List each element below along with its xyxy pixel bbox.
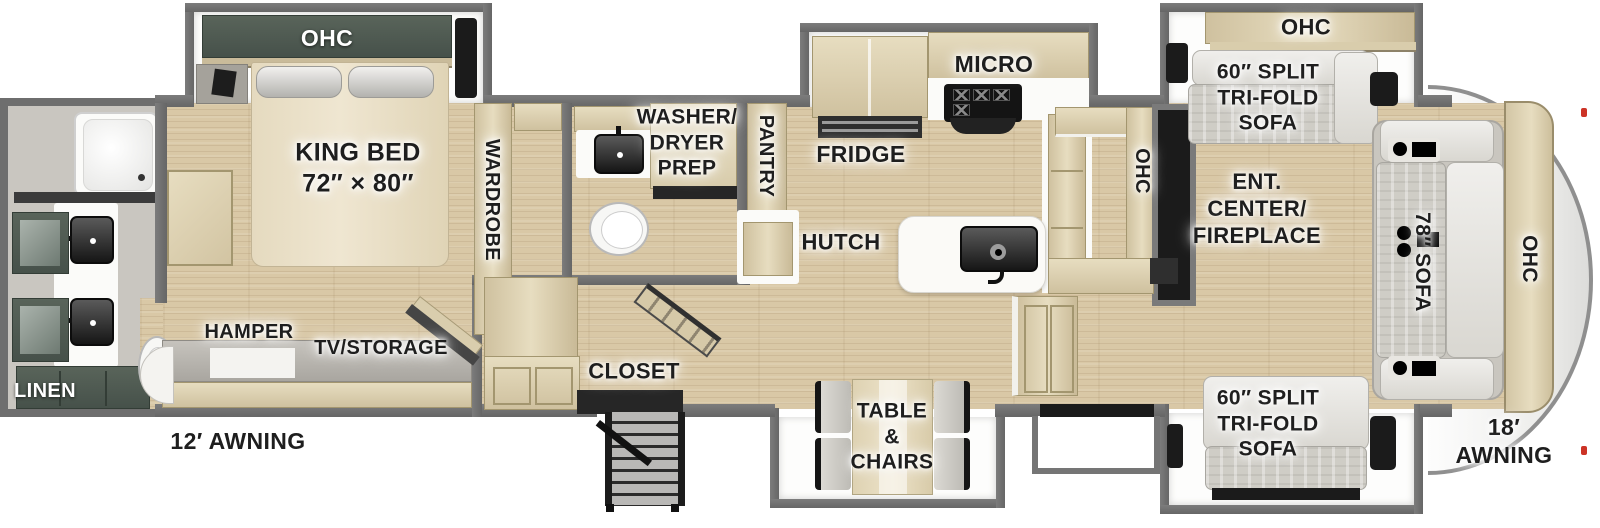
label-top-slide-ohc: OHC (1281, 15, 1331, 42)
cupholder (1393, 361, 1407, 375)
fridge-vent (822, 121, 918, 124)
wall-bedroom-bath-divider (155, 103, 167, 303)
faucet-hole (995, 249, 1002, 256)
bed-slide-wall-top (185, 3, 492, 12)
buffet-dark-shelf (1150, 258, 1178, 284)
bed-slide-wall-left (185, 3, 194, 107)
dining-chair (815, 438, 851, 490)
cabinet-line (1051, 227, 1083, 229)
cabinet-door (1024, 305, 1048, 393)
sink-drain (90, 320, 96, 326)
entry-landing (577, 390, 683, 414)
bath-shelf (14, 192, 156, 203)
bench-panel (535, 367, 573, 405)
range-hood (950, 118, 1016, 134)
clearance-light-bottom (1581, 446, 1587, 455)
tall-cabinet (1012, 296, 1078, 396)
dining-chair (934, 381, 970, 433)
buffet-cabinet (1048, 258, 1154, 294)
closet-bench (484, 356, 580, 410)
table-slide-wall-bottom (770, 499, 1005, 508)
shower (74, 112, 158, 196)
label-front-ohc: OHC (1516, 235, 1542, 283)
cabinet-door (1050, 305, 1074, 393)
fridge-base (818, 116, 922, 138)
wall-bottom-2 (675, 404, 775, 417)
kitchen-slide-wall-top (800, 23, 1098, 32)
top-slide-window-left (1166, 43, 1188, 83)
label-closet: CLOSET (588, 359, 680, 386)
label-awning-18: 18′ AWNING (1456, 413, 1553, 469)
table-slide-wall-right (996, 408, 1005, 508)
hall-shelf (514, 103, 562, 131)
bottom-sofa-slide-wall-bottom (1160, 505, 1423, 514)
hutch-cabinet (743, 222, 793, 276)
sink-drain (90, 238, 96, 244)
fridge-door-split (868, 39, 871, 117)
bottom-slide-window-right (1370, 416, 1396, 470)
mirror-cabinet-1 (12, 212, 69, 274)
label-fridge: FRIDGE (816, 140, 905, 168)
dining-chair (934, 438, 970, 490)
burner-icon (973, 89, 990, 101)
table-slide-wall-left (770, 408, 779, 508)
stove (944, 84, 1022, 122)
top-slide-window-right (1370, 72, 1398, 106)
bed-pillow-left (256, 66, 342, 98)
front-entry-step-well (1032, 416, 1160, 474)
wall-bottom-4 (1420, 404, 1452, 417)
dining-chair (815, 381, 851, 433)
label-awning-12: 12′ AWNING (170, 427, 305, 455)
vanity-sink-2 (70, 298, 114, 346)
console-tray (1412, 142, 1436, 157)
label-hamper: HAMPER (204, 320, 293, 344)
top-sofa-slide-wall-top (1160, 3, 1423, 12)
closet-cabinet-upper (484, 277, 578, 359)
island-sink (960, 226, 1038, 272)
label-micro: MICRO (955, 50, 1034, 78)
bottom-slide-window-left (1167, 424, 1183, 468)
bed-slide-wall-right (483, 3, 492, 107)
label-washer-dryer-prep: WASHER/ DRYER PREP (637, 105, 738, 182)
front-sofa-console-top (1388, 138, 1440, 162)
label-table-chairs: TABLE & CHAIRS (851, 399, 934, 476)
bottom-sofa-base (1212, 488, 1360, 500)
bottom-sofa-slide-wall-right (1414, 404, 1423, 514)
label-wardrobe: WARDROBE (480, 139, 504, 261)
nightstand (196, 64, 248, 104)
burner-icon (953, 104, 970, 116)
wall-midbath-left (562, 103, 572, 285)
label-pantry: PANTRY (754, 115, 778, 197)
clearance-light-top (1581, 108, 1587, 117)
fridge-vent (822, 129, 918, 132)
hamper-inset (210, 348, 295, 378)
bench-panel (493, 367, 531, 405)
mirror-glass (20, 220, 60, 266)
washer-dryer-drawers (653, 186, 737, 199)
vanity-sink-1 (70, 216, 114, 264)
floorplan-canvas: OHC KING BED 72″ × 80″ WARDROBE LINEN HA… (0, 0, 1600, 528)
step-foot-right (671, 504, 679, 512)
cupholder (1393, 142, 1407, 156)
wall-top-4 (1418, 95, 1452, 107)
nightstand-item (211, 69, 236, 98)
bedroom-door (167, 170, 233, 266)
panel-line (105, 371, 107, 406)
label-sofa-top: 60″ SPLIT TRI-FOLD SOFA (1217, 60, 1319, 137)
dresser-front (162, 382, 472, 408)
midbath-toilet (589, 202, 649, 256)
label-sofa-bottom: 60″ SPLIT TRI-FOLD SOFA (1217, 386, 1319, 463)
stove-burners (953, 89, 1013, 116)
shower-drain (138, 174, 145, 181)
cabinet-line (1051, 170, 1083, 172)
label-hutch: HUTCH (802, 230, 881, 257)
kitchen-ohc-over-counter (1055, 107, 1131, 137)
label-kitchen-ohc: OHC (1130, 148, 1154, 194)
bed-pillow-right (348, 66, 434, 98)
fridge (812, 36, 928, 118)
sink-drain (617, 152, 623, 158)
mirror-glass (20, 306, 60, 354)
front-sofa-console-bottom (1388, 356, 1440, 380)
bed-slide-window (455, 18, 477, 98)
burner-icon (993, 89, 1010, 101)
label-tv-storage: TV/STORAGE (314, 336, 448, 360)
label-bedroom-ohc: OHC (301, 24, 353, 52)
step-foot-left (606, 504, 614, 512)
label-king-bed: KING BED 72″ × 80″ (295, 138, 420, 199)
top-sofa-slide-wall-right (1414, 3, 1423, 107)
mirror-cabinet-2 (12, 298, 69, 362)
midbath-faucet (616, 126, 621, 136)
front-entry-threshold (1040, 404, 1154, 417)
label-ent-center: ENT. CENTER/ FIREPLACE (1193, 169, 1321, 249)
console-tray (1412, 361, 1436, 376)
toilet-seat (601, 211, 643, 249)
front-sofa-back (1446, 162, 1504, 358)
label-linen: LINEN (14, 379, 76, 403)
label-sofa-front: 78″ SOFA (1409, 212, 1435, 312)
burner-icon (953, 89, 970, 101)
